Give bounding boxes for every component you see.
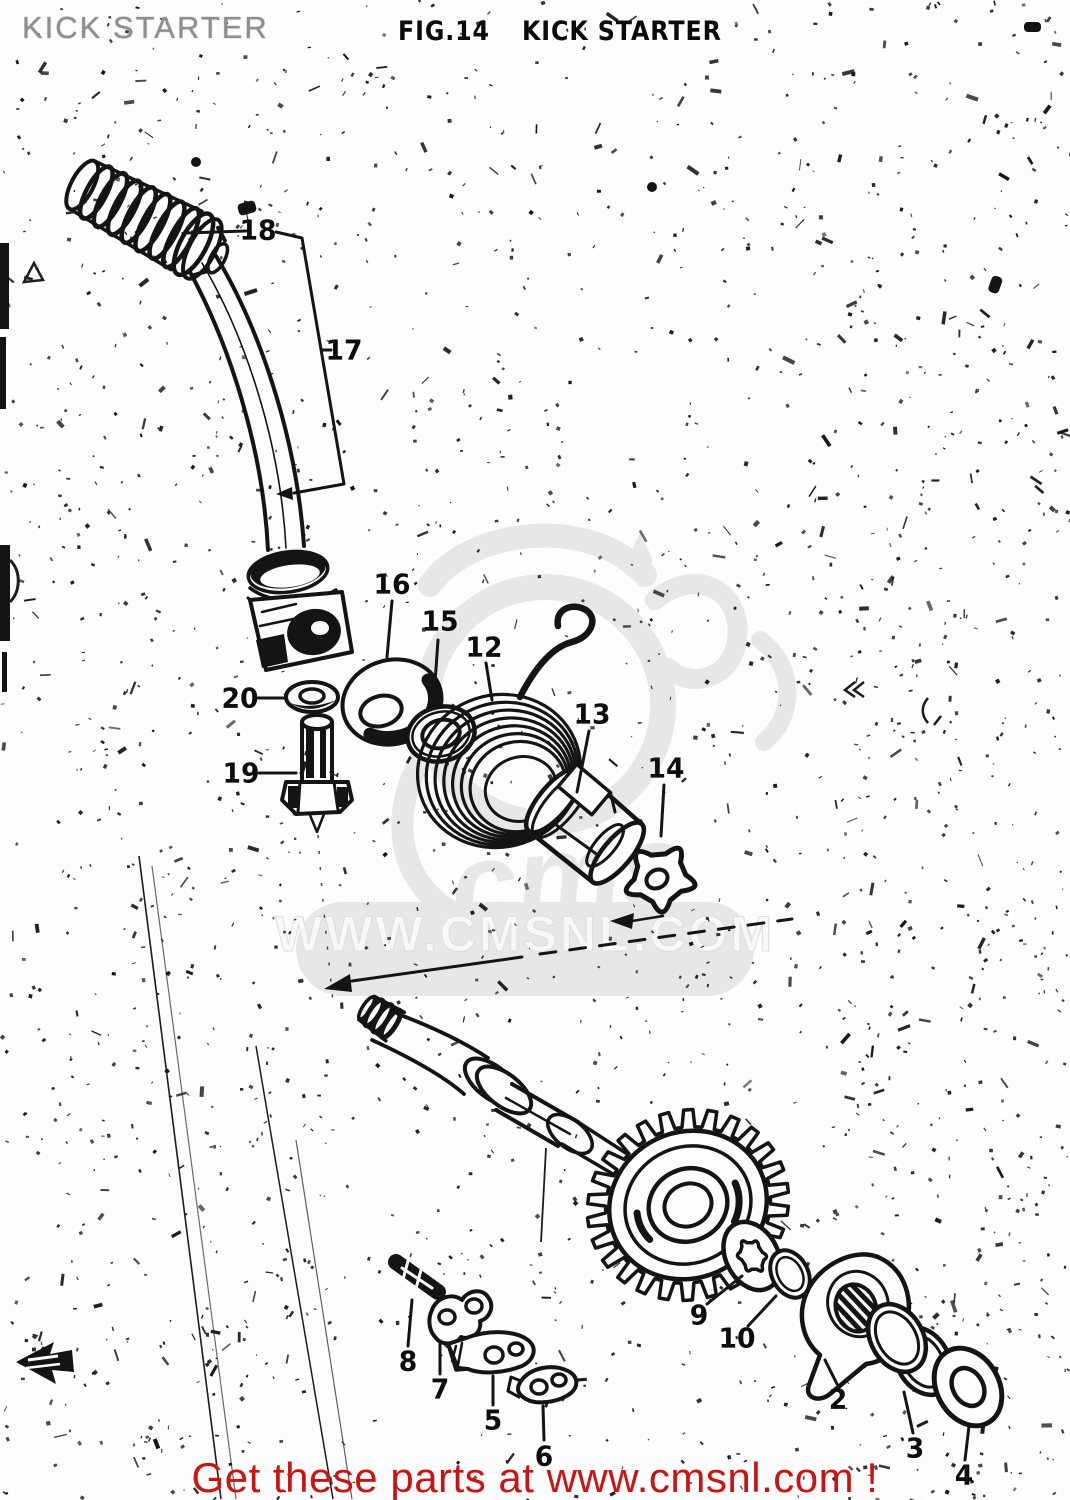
figure-title: FIG.14 KICK STARTER (398, 16, 722, 47)
part-number-label-18: 18 (239, 214, 276, 247)
kick-pedal-rubber (57, 150, 241, 291)
plate-5 (448, 1332, 534, 1372)
figure-name: KICK STARTER (522, 16, 722, 47)
kick-starter-lever (190, 256, 304, 550)
part-number-label-19: 19 (222, 757, 259, 790)
parts-catalog-scan: cms WWW.CMSNL.COM (0, 0, 1070, 1500)
pin-8 (396, 1261, 438, 1292)
part-number-label-3: 3 (906, 1432, 925, 1465)
watermark-band-text: WWW.CMSNL.COM (275, 906, 775, 962)
watermark-layer: cms WWW.CMSNL.COM (275, 533, 788, 996)
part-number-label-8: 8 (399, 1345, 418, 1378)
part-number-label-7: 7 (431, 1373, 450, 1406)
part-number-label-4: 4 (955, 1459, 974, 1492)
figure-number: FIG.14 (398, 16, 490, 47)
exploded-view-drawing (57, 150, 1016, 1460)
lever-knuckle (246, 547, 352, 670)
part-number-label-14: 14 (647, 752, 684, 785)
part-number-label-2: 2 (829, 1383, 848, 1416)
plate-6 (508, 1367, 576, 1402)
part-number-label-5: 5 (484, 1404, 503, 1437)
part-number-label-10: 10 (718, 1322, 755, 1355)
washer-20 (286, 682, 338, 712)
promo-link-text[interactable]: Get these parts at www.cmsnl.com ! (192, 1454, 879, 1500)
kick-spring-hook (520, 607, 592, 697)
part-number-label-20: 20 (221, 682, 258, 715)
part-number-label-16: 16 (373, 568, 410, 601)
page-stamp-title: KICK STARTER (22, 10, 269, 46)
part-number-label-13: 13 (573, 698, 610, 731)
part-number-label-15: 15 (421, 605, 458, 638)
part-number-label-9: 9 (690, 1299, 709, 1332)
part-number-label-12: 12 (465, 631, 502, 664)
kick-starter-diagram: cms WWW.CMSNL.COM (0, 0, 1070, 1500)
part-number-label-17: 17 (325, 334, 362, 367)
